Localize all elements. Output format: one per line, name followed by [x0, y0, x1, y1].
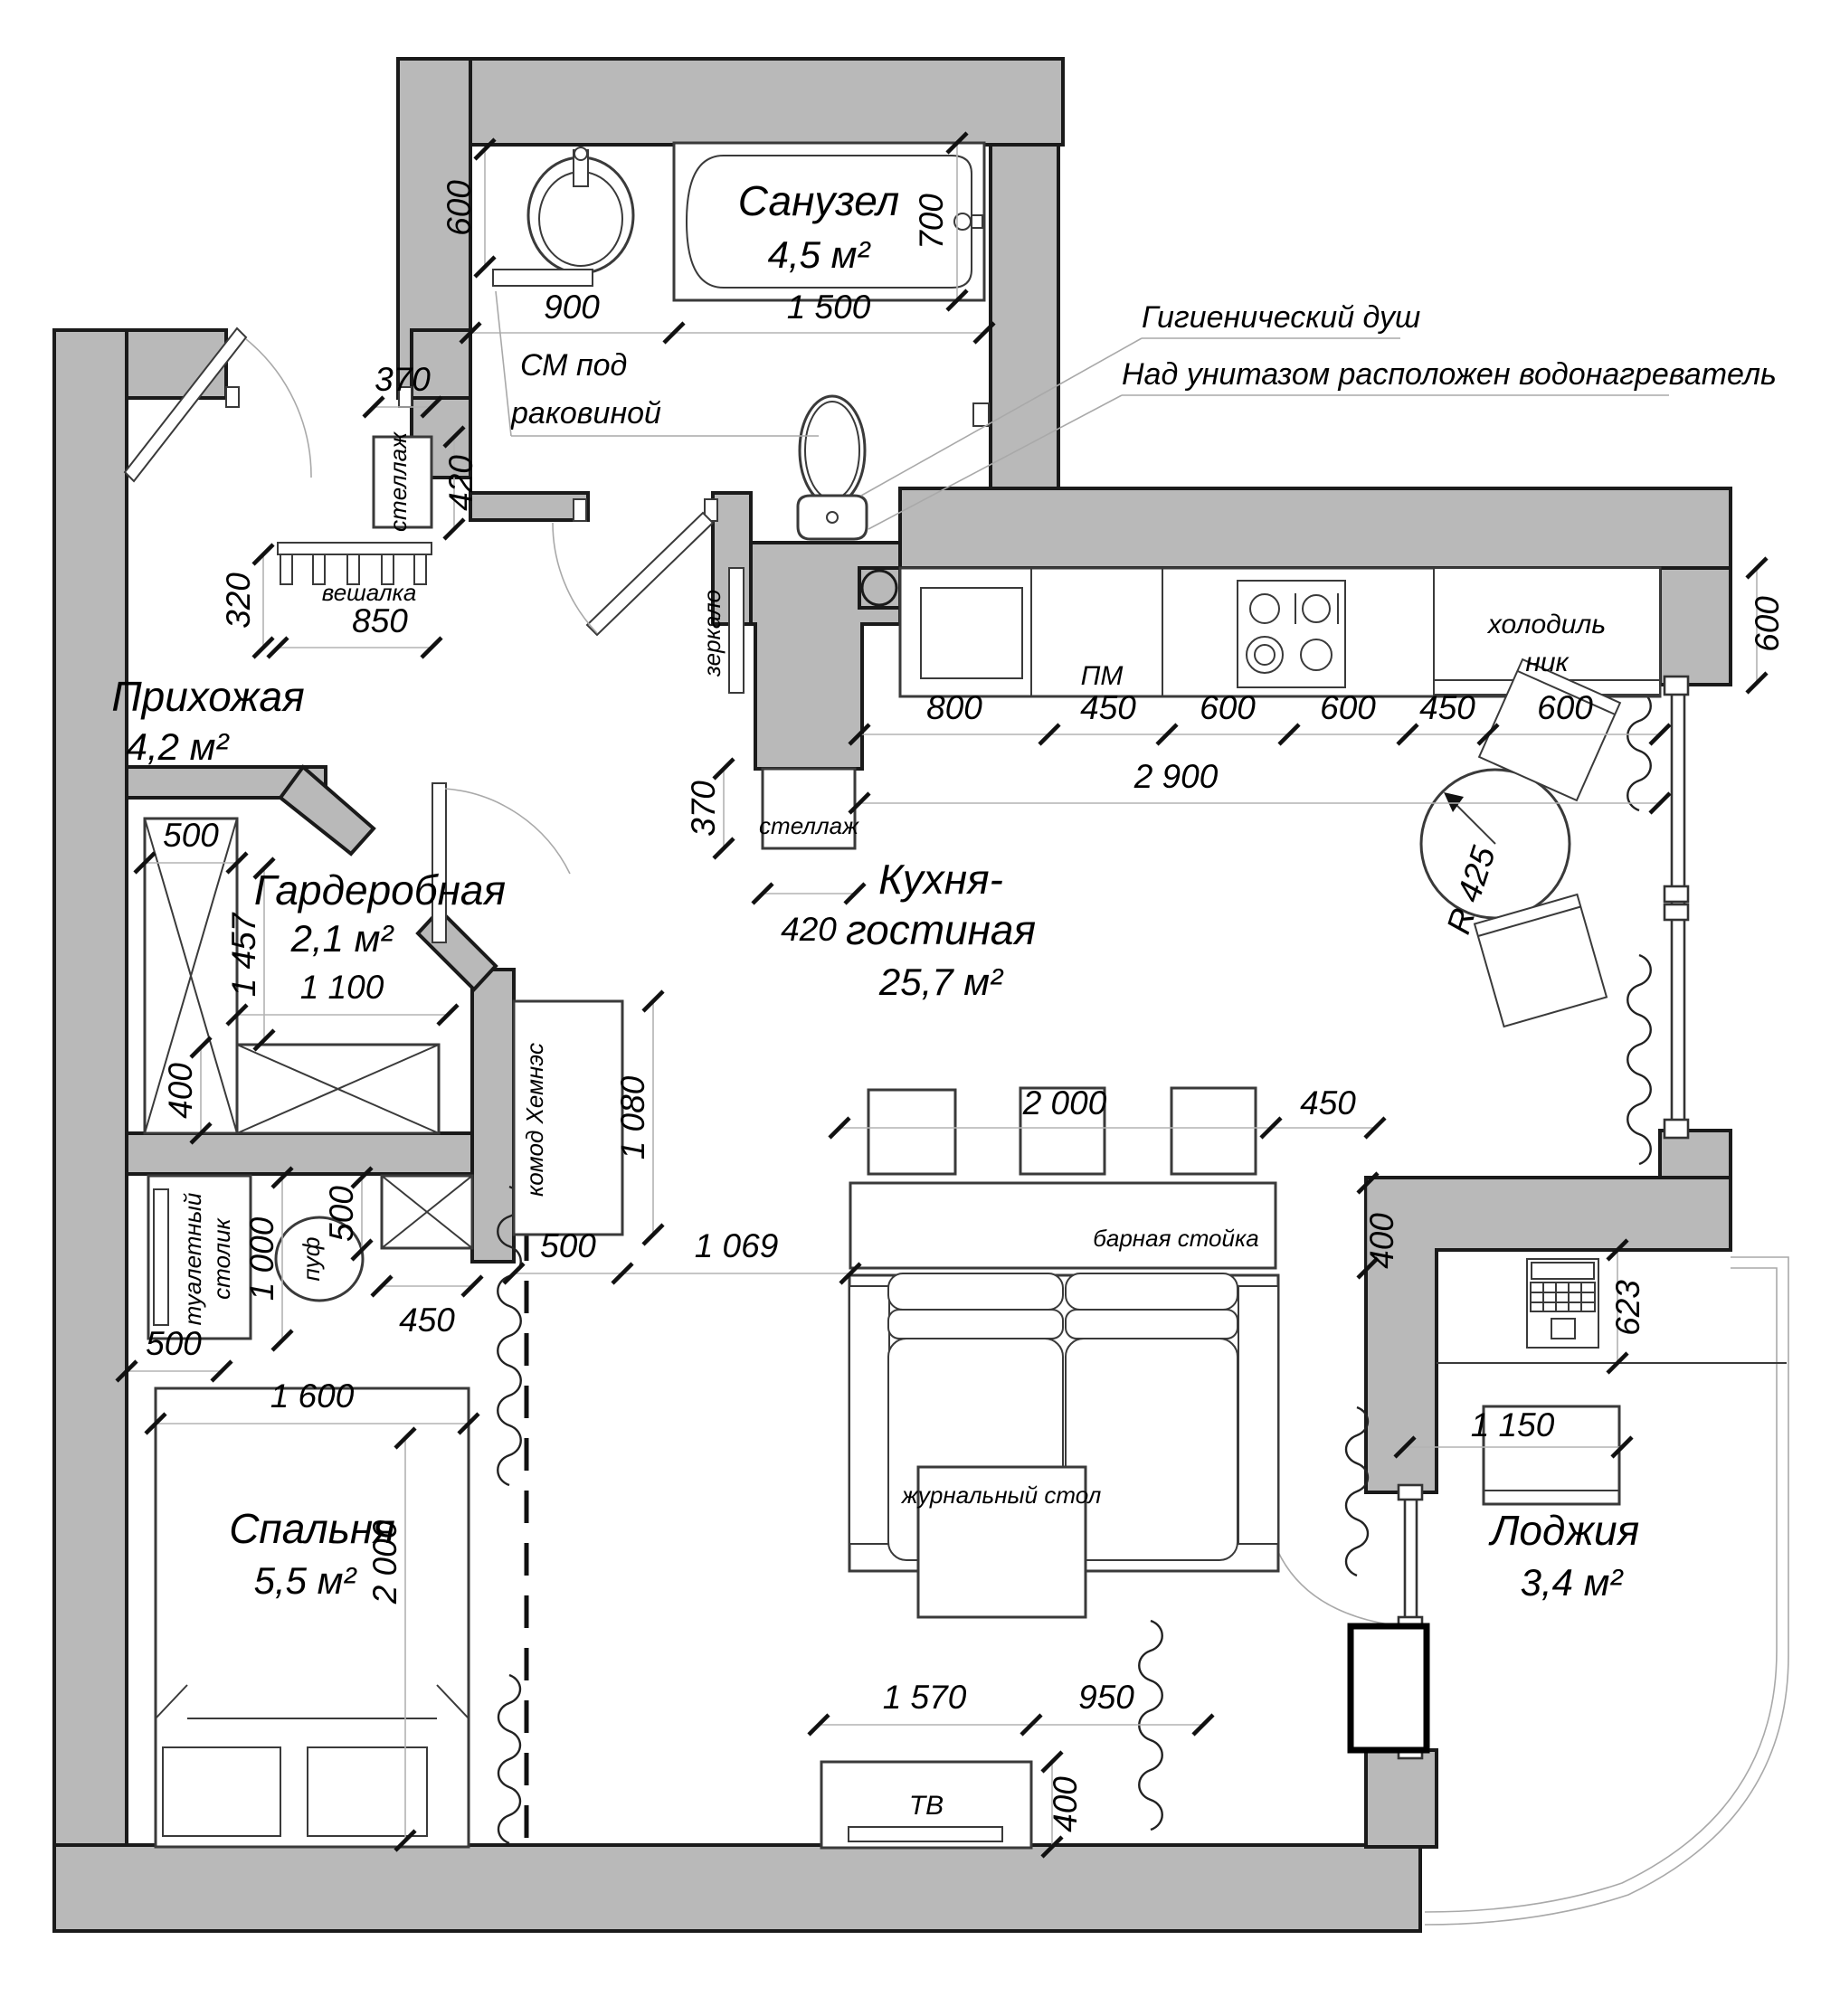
bar-label: барная стойка	[1093, 1225, 1258, 1252]
dim-lg-1150: 1 150	[1471, 1406, 1555, 1443]
dim-dr-500b: 500	[146, 1325, 202, 1362]
dim-hall-850: 850	[352, 602, 408, 639]
room-hallway-name: Прихожая	[111, 673, 304, 720]
hall-shelf-label: стеллаж	[384, 431, 412, 532]
dim-km-1069: 1 069	[695, 1227, 779, 1264]
fridge-label-2: ник	[1525, 648, 1570, 677]
kitchen-shelf-label: стеллаж	[759, 812, 859, 839]
dim-bed-1600: 1 600	[270, 1377, 355, 1415]
bathroom-door-leaf	[587, 513, 713, 635]
dim-bar-400: 400	[1363, 1213, 1400, 1269]
stove-icon	[1238, 581, 1345, 687]
sofa-seat-cushion	[1066, 1339, 1238, 1560]
dim-hall-320: 320	[220, 573, 257, 629]
bathroom-door-arc	[553, 523, 597, 633]
bar-stool	[868, 1090, 955, 1174]
room-kitchen-name-1: Кухня-	[878, 856, 1003, 903]
hygienic-shower-holder	[973, 403, 989, 426]
dim-ksh-370: 370	[685, 781, 722, 837]
dim-hall-370: 370	[375, 361, 431, 398]
toilet	[798, 396, 867, 539]
vent-shaft-icon	[859, 568, 900, 608]
entry-door-jamb	[226, 387, 239, 407]
bed-pillow	[163, 1747, 280, 1836]
dim-km-1080: 1 080	[614, 1075, 651, 1159]
dim-kc-450b: 450	[1419, 689, 1475, 726]
wardrobe-door-arc	[445, 789, 570, 874]
dim-kc-2900: 2 900	[1133, 758, 1219, 795]
dishwasher-label: ПМ	[1081, 661, 1124, 691]
dim-wr-1100: 1 100	[300, 969, 384, 1006]
mirror	[729, 568, 744, 693]
dining-table	[1421, 770, 1570, 918]
dim-bath-700: 700	[913, 194, 950, 250]
room-loggia-name: Лоджия	[1488, 1507, 1639, 1554]
dim-wr-500: 500	[163, 817, 219, 854]
annotation-heater: Над унитазом расположен водонагреватель	[1122, 357, 1777, 392]
dim-bath-600: 600	[441, 180, 478, 236]
dim-km-500: 500	[540, 1227, 596, 1264]
room-hallway-area: 4,2 м²	[127, 725, 231, 768]
bed-pillow	[308, 1747, 427, 1836]
sofa-armrest	[1238, 1286, 1278, 1544]
dim-kc-600b: 600	[1320, 689, 1376, 726]
annotation-washer-2: раковиной	[510, 396, 661, 431]
coffee-table-label: журнальный стол	[901, 1481, 1102, 1509]
hanger-label: вешалка	[322, 579, 417, 606]
balcony-cabinet	[1351, 1626, 1427, 1750]
dim-dr-450: 450	[399, 1301, 455, 1339]
dim-bar-2000: 2 000	[1022, 1084, 1107, 1122]
laptop-icon	[1527, 1259, 1598, 1348]
sofa-back-cushion	[1066, 1273, 1238, 1310]
dim-bath-1500: 1 500	[787, 289, 871, 326]
dim-dr-1000: 1 000	[243, 1216, 280, 1301]
room-kitchen-name-2: гостиная	[846, 906, 1036, 953]
sofa-armrest	[849, 1286, 889, 1544]
bed	[156, 1388, 469, 1847]
dim-bar-450: 450	[1300, 1084, 1356, 1122]
bathroom-sink	[528, 147, 633, 273]
hallway-furniture	[278, 437, 744, 693]
washing-machine	[493, 270, 593, 286]
dim-wr-400: 400	[162, 1063, 199, 1119]
floor-plan-page: 600 900 1 500 700 370 420 850 320 500 1 …	[0, 0, 1821, 2011]
dim-ksh-420: 420	[781, 911, 837, 948]
wardrobe-cabinet-bottom	[237, 1045, 439, 1133]
entry-door-arc	[246, 339, 311, 478]
room-kitchen-area: 25,7 м²	[878, 961, 1004, 1003]
floor-plan: 600 900 1 500 700 370 420 850 320 500 1 …	[0, 0, 1821, 2011]
dim-wr-1457: 1 457	[225, 912, 262, 997]
room-bathroom-area: 4,5 м²	[768, 233, 872, 276]
dim-bath-900: 900	[544, 289, 600, 326]
dim-tv-950: 950	[1078, 1679, 1134, 1716]
annotation-shower: Гигиенический душ	[1142, 300, 1420, 335]
pouf-label: пуф	[298, 1236, 325, 1281]
dressing-table-label-2: столик	[208, 1216, 235, 1299]
dim-hall-420: 420	[442, 455, 479, 511]
fridge-label-1: холодиль	[1486, 610, 1606, 639]
dim-lg-623: 623	[1609, 1280, 1646, 1336]
kitchen-sink-cabinet	[921, 588, 1022, 678]
dim-tv-1570: 1 570	[883, 1679, 967, 1716]
room-loggia-area: 3,4 м²	[1521, 1561, 1625, 1604]
tv-label: ТВ	[909, 1791, 944, 1821]
curtain-bedroom-lower	[498, 1675, 520, 1843]
wardrobe-door-leaf	[432, 783, 446, 942]
bar-stool	[1171, 1088, 1256, 1174]
annotation-washer-1: СМ под	[520, 348, 627, 383]
sofa-back-cushion	[888, 1273, 1063, 1310]
bath-door-jamb	[574, 499, 586, 521]
room-bathroom-name: Санузел	[738, 177, 900, 224]
dim-kc-600c: 600	[1537, 689, 1593, 726]
toilet-button-icon	[827, 512, 838, 523]
dim-kc-600a: 600	[1200, 689, 1256, 726]
tv-icon	[849, 1827, 1002, 1841]
dresser-label: комод Хемнэс	[521, 1043, 548, 1197]
balcony-door-arc	[1264, 1492, 1400, 1626]
dim-kc-450a: 450	[1080, 689, 1136, 726]
dim-tv-400: 400	[1047, 1776, 1084, 1832]
dim-wall-600: 600	[1749, 596, 1786, 652]
room-wardrobe-name: Гардеробная	[254, 866, 506, 913]
curtain-window-lower	[1627, 955, 1651, 1164]
room-bedroom-name: Спальня	[229, 1505, 395, 1552]
mirror-label: зеркало	[698, 590, 726, 677]
dim-kc-800: 800	[926, 689, 982, 726]
dim-dr-500: 500	[323, 1186, 360, 1242]
dressing-cabinet	[382, 1176, 472, 1248]
dressing-table-label-1: туалетный	[179, 1193, 206, 1326]
room-bedroom-area: 5,5 м²	[254, 1559, 358, 1602]
kitchen-window	[1665, 677, 1688, 1138]
room-wardrobe-area: 2,1 м²	[290, 917, 395, 960]
